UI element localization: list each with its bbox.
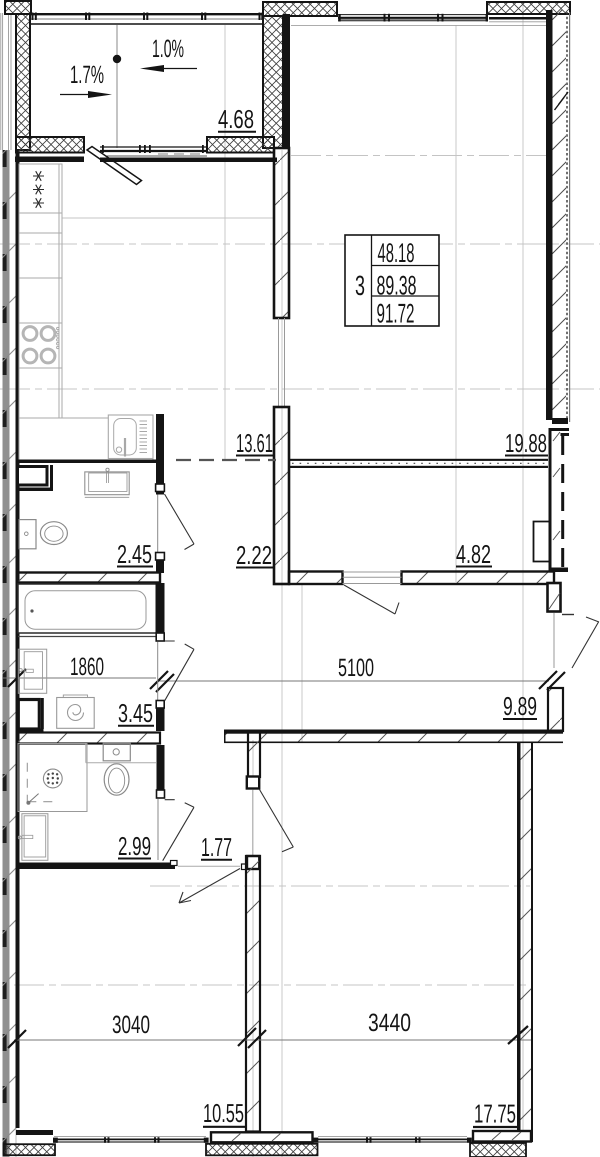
- svg-text:2.45: 2.45: [117, 539, 152, 569]
- svg-text:3: 3: [355, 270, 365, 301]
- svg-text:5100: 5100: [338, 654, 374, 682]
- svg-text:9.89: 9.89: [503, 691, 537, 721]
- svg-text:2.99: 2.99: [118, 831, 151, 861]
- svg-text:10.55: 10.55: [203, 1098, 244, 1128]
- svg-text:3040: 3040: [112, 1011, 150, 1039]
- svg-text:1.0%: 1.0%: [152, 35, 184, 63]
- svg-text:4.68: 4.68: [218, 104, 254, 134]
- svg-text:48.18: 48.18: [378, 238, 415, 268]
- svg-text:2.22: 2.22: [236, 540, 272, 570]
- svg-text:19.88: 19.88: [505, 428, 547, 458]
- svg-text:4.82: 4.82: [456, 539, 491, 569]
- svg-text:3.45: 3.45: [118, 698, 153, 728]
- svg-text:3440: 3440: [368, 1009, 411, 1037]
- svg-text:1.77: 1.77: [201, 832, 232, 862]
- svg-text:89.38: 89.38: [377, 271, 417, 301]
- svg-text:1860: 1860: [70, 653, 104, 681]
- svg-text:17.75: 17.75: [474, 1099, 516, 1129]
- svg-text:13.61: 13.61: [236, 428, 273, 458]
- svg-text:91.72: 91.72: [377, 299, 415, 329]
- svg-text:1.7%: 1.7%: [70, 61, 104, 89]
